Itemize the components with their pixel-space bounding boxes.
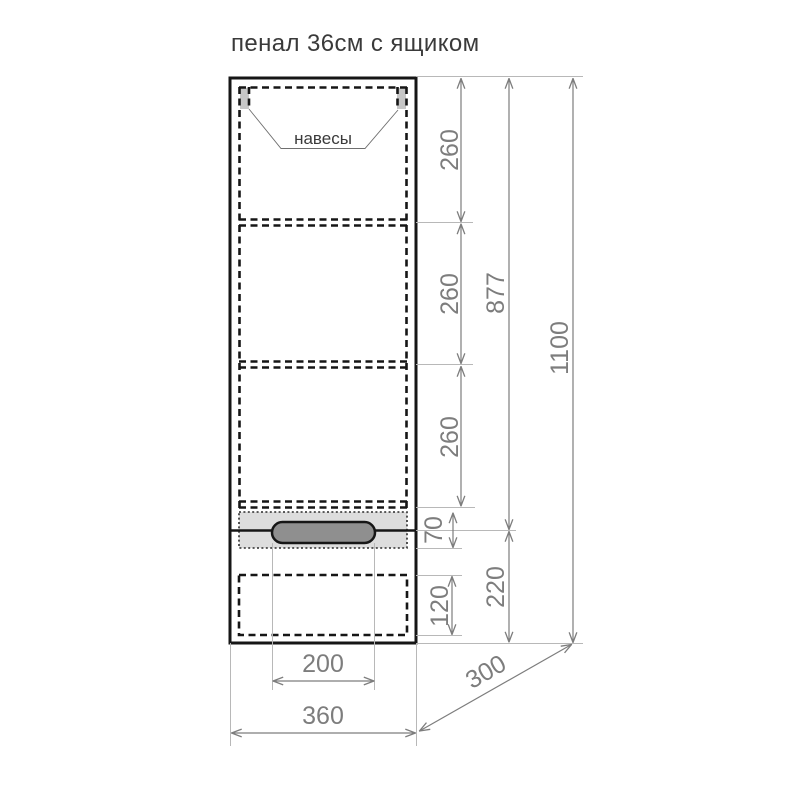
- inner-dashed-edges: [239, 87, 407, 512]
- hinges-label: навесы: [294, 129, 352, 148]
- dim-label-drawer-inner: 120: [426, 585, 454, 627]
- dim-label-cabinet-depth: 300: [461, 650, 511, 695]
- drawer-handle: [272, 522, 375, 543]
- shelf-line-2: [239, 362, 407, 368]
- dim-total-height: 1100: [546, 79, 574, 643]
- dim-label-drawer-front: 220: [482, 566, 510, 608]
- shelf-line-1: [239, 220, 407, 226]
- dim-label-upper-body: 877: [482, 272, 510, 314]
- dim-drawer-inner: 120: [426, 577, 454, 635]
- hinge-left-icon: [240, 88, 249, 109]
- cabinet-body: навесы: [230, 78, 416, 643]
- dim-label-section-3: 260: [436, 416, 464, 458]
- dim-cabinet-width: 360: [232, 702, 416, 733]
- dim-shelf-section-2: 260: [436, 224, 464, 364]
- dim-label-section-2: 260: [436, 273, 464, 315]
- dim-drawer-front: 220: [482, 532, 510, 643]
- drawer-dashed-box: [239, 575, 407, 635]
- dim-label-section-1: 260: [436, 129, 464, 171]
- dim-label-handle-zone: 70: [420, 516, 448, 544]
- dim-label-cabinet-width: 360: [302, 702, 344, 730]
- dim-cabinet-depth: 300: [420, 645, 572, 732]
- dim-shelf-section-3: 260: [436, 367, 464, 507]
- dim-shelf-section-1: 260: [436, 79, 464, 222]
- furniture-drawing-page: пенал 36см с ящиком: [0, 0, 800, 800]
- dim-upper-body: 877: [482, 79, 510, 530]
- cabinet-dimension-drawing: навесы: [0, 0, 800, 800]
- dim-label-total-height: 1100: [546, 321, 574, 375]
- shelf-line-3: [239, 502, 407, 508]
- dim-label-handle-width: 200: [302, 650, 344, 678]
- dim-handle-width: 200: [273, 650, 374, 681]
